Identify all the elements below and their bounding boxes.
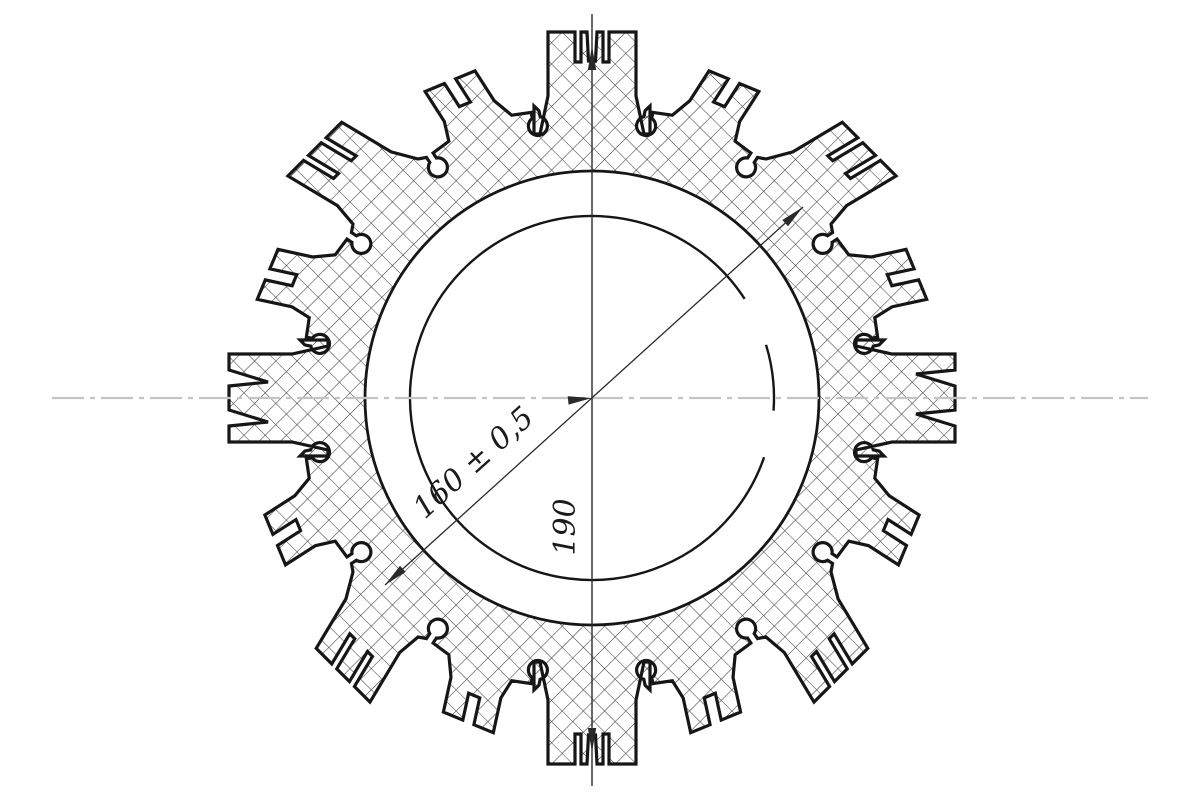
engineering-drawing: 160 ± 0,5 190 [0, 0, 1200, 800]
bore-circle-arc [766, 345, 774, 411]
diagonal-dimension-line [385, 207, 803, 585]
dimension-label-vertical: 190 [548, 498, 583, 555]
drawing-canvas: 160 ± 0,5 190 [0, 0, 1200, 800]
